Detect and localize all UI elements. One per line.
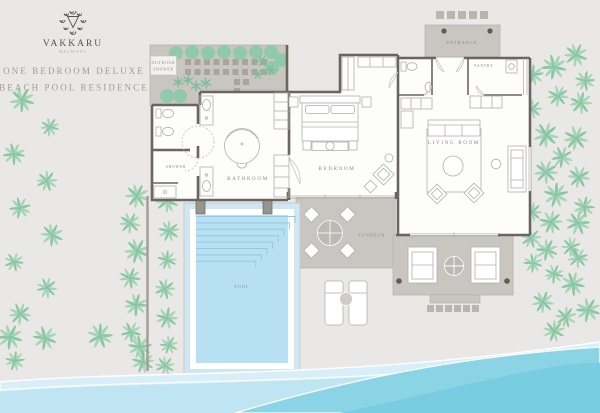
toilet-icon — [401, 62, 406, 71]
entrance-label: ENTRANCE — [446, 40, 477, 45]
sofa-icon — [428, 120, 480, 136]
brand-name: VAKKARU — [43, 39, 103, 49]
terrace-armchair-icon — [408, 247, 437, 283]
brand-block: VAKKARU MALDIVES ONE BEDROOM DELUXE BEAC… — [0, 11, 149, 93]
residence-title-line2: BEACH POOL RESIDENCE — [0, 83, 149, 93]
vakkaru-logo-icon — [60, 11, 86, 34]
pool: POOL — [184, 194, 300, 375]
brand-sub: MALDIVES — [59, 50, 87, 54]
nightstand-icon — [289, 97, 298, 107]
floorplan-page: ENTRANCE OUTDOOR SHOWER SUNDECK — [0, 0, 600, 413]
outdoor-shower-plaque — [151, 56, 177, 75]
sundeck-label: SUNDECK — [358, 233, 385, 238]
residence-title-line1: ONE BEDROOM DELUXE — [3, 66, 145, 76]
living-room-label: LIVING ROOM — [428, 141, 480, 146]
entrance-column-icon — [441, 28, 446, 33]
pantry-label: PANTRY — [474, 64, 493, 68]
pool-label: POOL — [234, 284, 249, 289]
bedroom-label: BEDROOM — [319, 167, 356, 172]
sun-loungers — [325, 281, 367, 325]
sun-lounger-icon — [349, 281, 367, 325]
entrance-column-icon — [487, 28, 492, 33]
toilet-icon — [156, 109, 174, 118]
toilet-icon — [156, 127, 174, 136]
stepping-stones-terrace — [427, 305, 479, 312]
window-daybed — [529, 147, 531, 191]
stepping-stone-icon — [436, 11, 444, 19]
coffee-table-icon — [443, 156, 463, 176]
shower-label: SHOWER — [166, 165, 187, 169]
nightstand-icon — [362, 97, 371, 107]
entrance-deck: ENTRANCE — [425, 11, 500, 57]
floorplan-drawing: ENTRANCE OUTDOOR SHOWER SUNDECK — [0, 0, 600, 413]
bathroom-label: BATHROOM — [227, 177, 269, 182]
sun-lounger-icon — [325, 281, 343, 325]
bed-icon — [300, 96, 360, 151]
sundeck: SUNDECK — [296, 197, 398, 268]
side-table-icon — [491, 159, 501, 169]
terrace-armchair-icon — [471, 247, 500, 283]
lounger-table-icon — [340, 293, 353, 306]
outdoor-shower-label-2: SHOWER — [153, 68, 174, 72]
terrace-table-icon — [445, 257, 464, 276]
daybed-icon — [508, 146, 526, 192]
outdoor-shower-label-1: OUTDOOR — [152, 61, 176, 65]
rear-terrace — [393, 235, 513, 312]
